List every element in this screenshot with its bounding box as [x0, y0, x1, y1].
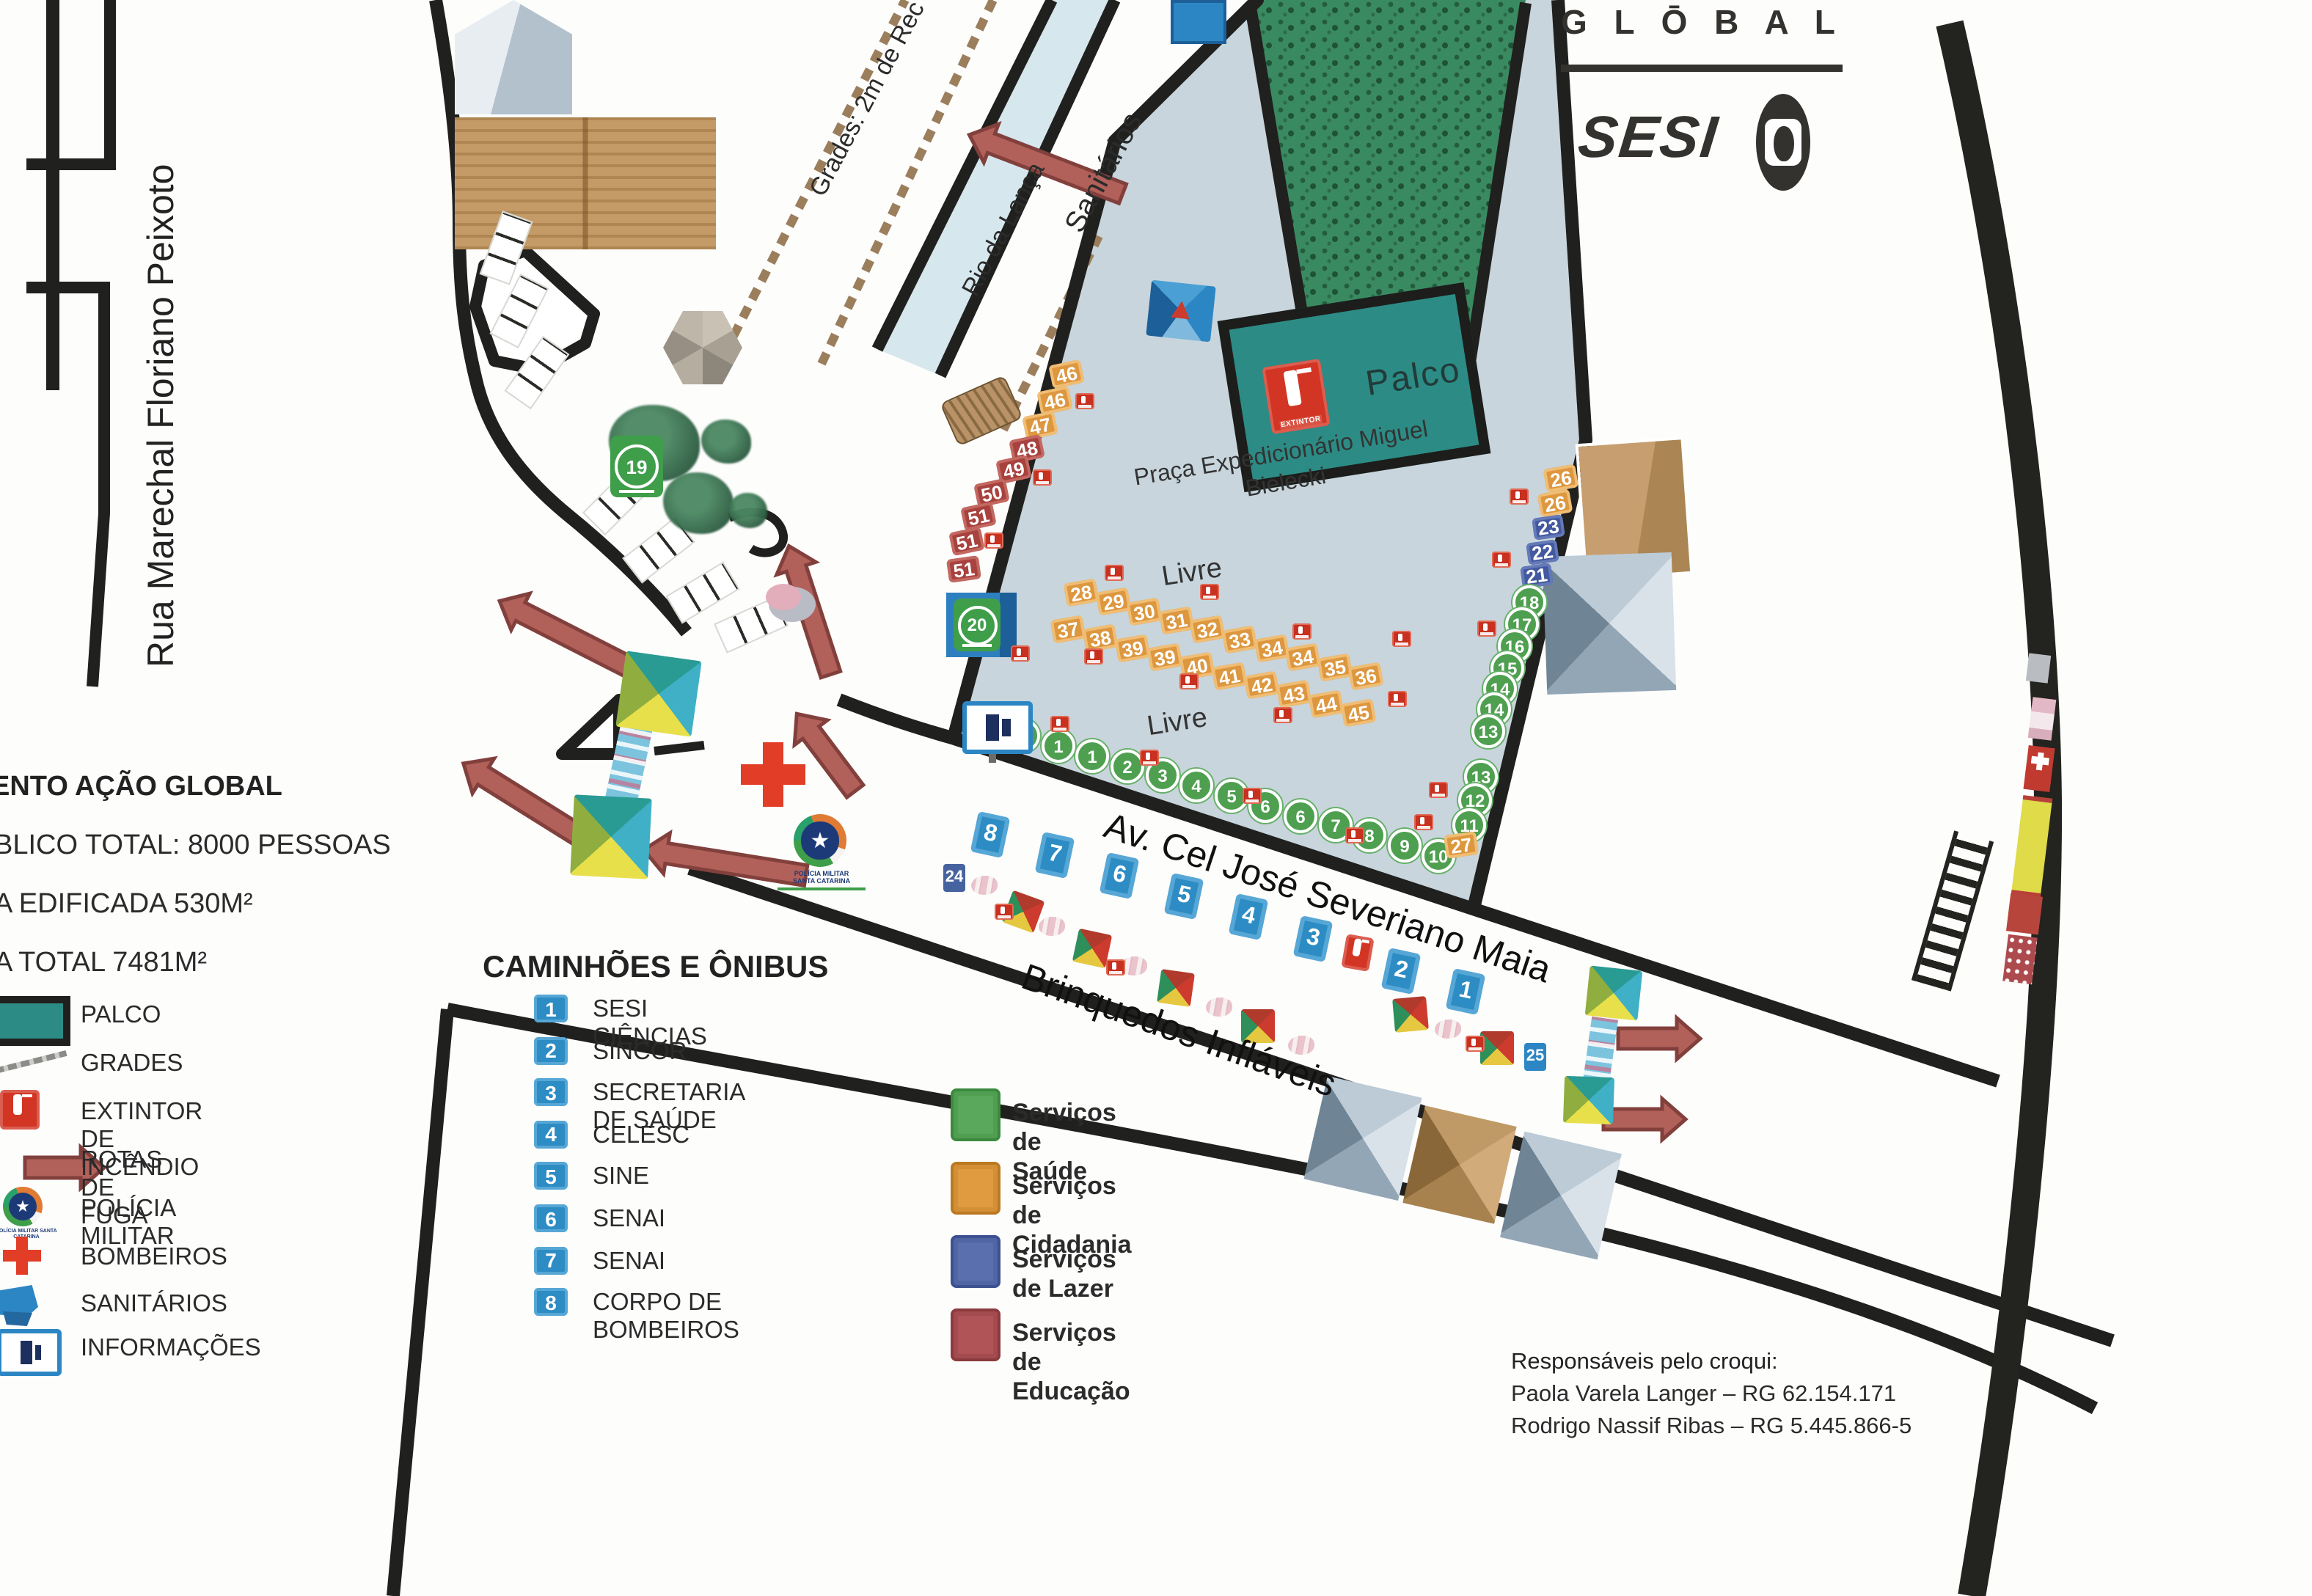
- extintor-icon: [1292, 623, 1312, 640]
- legend-item-label: SANITÁRIOS: [81, 1291, 227, 1319]
- stand-4: 4: [1179, 769, 1213, 802]
- extintor-icon: [1200, 584, 1219, 600]
- truck-row-label: SENAI: [593, 1206, 665, 1234]
- policia-militar-badge-icon: ★: [794, 814, 846, 867]
- stand-1: 1: [1042, 729, 1075, 763]
- badge-number: 20: [957, 605, 997, 645]
- extintor-icon: [1510, 488, 1529, 505]
- stand-22: 22: [1526, 539, 1559, 565]
- service-color-swatch: [951, 1088, 1000, 1141]
- extintor-icon: [1429, 782, 1448, 798]
- street-label-rua-marechal: Rua Marechal Floriano Peixoto: [141, 164, 183, 667]
- stand-6: 6: [1284, 799, 1317, 833]
- stand-25: 25: [1524, 1043, 1546, 1071]
- tent-icon: [1146, 280, 1215, 343]
- extintor-icon: [1414, 814, 1433, 830]
- badge-number: 19: [615, 444, 659, 488]
- escape-route-arrow-icon: [1603, 1099, 1686, 1140]
- wooden-building: [455, 117, 716, 249]
- globo-logo-icon: [1756, 94, 1810, 191]
- scanned-event-map: EXTINTOR Palco 19 20 ★ POLÍCIA MILITAR S…: [0, 0, 2312, 1596]
- track-car-redcross: [2023, 745, 2055, 792]
- extintor-icon: [984, 532, 1003, 549]
- information-sign-icon: [0, 1329, 62, 1376]
- tent-icon: [615, 651, 701, 736]
- truck-row-label: SINE: [593, 1164, 649, 1192]
- track-car-pink: [2028, 697, 2057, 740]
- extintor-label: EXTINTOR: [1278, 414, 1323, 430]
- palco-swatch-icon: [0, 996, 70, 1046]
- tent-icon: [570, 794, 652, 879]
- extintor-icon: [1105, 565, 1124, 581]
- credits-line: Rodrigo Nassif Ribas – RG 5.445.866-5: [1511, 1414, 1912, 1441]
- service-color-swatch: [951, 1162, 1000, 1215]
- stand-20-badge: 20: [954, 598, 1000, 651]
- street-line: [393, 1009, 447, 1596]
- extintor-icon: [1477, 621, 1496, 637]
- tent-icon: [1563, 1076, 1614, 1124]
- extintor-icon: [1106, 959, 1125, 975]
- traffic-island: [562, 700, 619, 754]
- information-sign-icon: [962, 701, 1033, 754]
- tent-icon: [1392, 996, 1429, 1033]
- street-corner: [26, 0, 110, 164]
- badge-star: ★: [802, 822, 838, 859]
- bombeiros-cross-icon: [741, 742, 805, 807]
- global-logo-text: G L Ō B A L: [1561, 3, 1844, 43]
- extintor-icon: [1011, 645, 1030, 662]
- extintor-icon: [1466, 1036, 1485, 1052]
- policia-text-line: POLÍCIA MILITAR: [775, 870, 868, 877]
- truck-row-label: CORPO DE BOMBEIROS: [593, 1289, 739, 1345]
- palco-label: Palco: [1363, 350, 1463, 406]
- bombeiros-cross-icon: [3, 1237, 41, 1275]
- pavilion-gray: [1543, 552, 1676, 695]
- extintor-icon: [1050, 716, 1069, 732]
- track-car-dotted: [2002, 934, 2038, 984]
- extintor-icon: [1345, 827, 1364, 843]
- tent-icon: [1480, 1031, 1514, 1065]
- stand-24: 24: [943, 864, 965, 892]
- truck-number-badge: 4: [534, 1121, 568, 1149]
- extintor-icon: [1140, 750, 1159, 766]
- tree: [701, 420, 751, 464]
- legend-item-label: PALCO: [81, 1002, 161, 1030]
- extintor-icon: [1492, 552, 1511, 568]
- inflatable-toy: [971, 876, 998, 895]
- event-info-line: A TOTAL 7481M²: [0, 948, 207, 980]
- service-label: Serviços de Educação: [1012, 1319, 1130, 1407]
- extintor-icon: [1179, 673, 1199, 689]
- track-car-gray: [2026, 653, 2051, 683]
- sesi-logo-text: SESI: [1575, 106, 1722, 172]
- extintor-icon: [1392, 631, 1411, 647]
- event-title: ENTO AÇÃO GLOBAL: [0, 772, 282, 804]
- escape-route-arrow-icon: [1618, 1018, 1700, 1059]
- road-mark: [654, 745, 704, 751]
- extintor-icon: [1075, 393, 1094, 409]
- truck-number-badge: 6: [534, 1204, 568, 1232]
- truck-row-label: SENAI: [593, 1248, 665, 1275]
- truck-row-label: SINCOR: [593, 1038, 687, 1066]
- logo-underline: [1561, 65, 1843, 72]
- legend-item-label: GRADES: [81, 1050, 183, 1078]
- sanitarios-marker: [1171, 0, 1226, 44]
- policia-militar-badge-icon: ★: [3, 1187, 43, 1226]
- globo-inner-ellipse: [1774, 126, 1793, 161]
- stone-pink: [766, 584, 801, 610]
- inflatable-toy: [1206, 997, 1232, 1017]
- badge-star: ★: [9, 1193, 37, 1220]
- stand-51: 51: [946, 555, 981, 583]
- stand-23: 23: [1532, 514, 1565, 541]
- stand-13: 13: [1471, 714, 1505, 748]
- legend-item-label: POLÍCIA MILITAR: [81, 1196, 175, 1251]
- trucks-title: CAMINHÕES E ÔNIBUS: [483, 951, 828, 986]
- extintor-icon: [1273, 707, 1292, 723]
- legend-item-label: BOMBEIROS: [81, 1244, 227, 1272]
- tent-icon: [1157, 969, 1195, 1007]
- extintor-icon: [1388, 691, 1407, 707]
- map-base-drawing: [0, 0, 2312, 1596]
- policia-badge-text: POLÍCIA MILITAR SANTA CATARINA: [775, 870, 868, 885]
- truck-number-badge: 5: [534, 1163, 568, 1190]
- extintor-icon: [995, 904, 1014, 920]
- credits-line: Paola Varela Langer – RG 62.154.171: [1511, 1382, 1896, 1408]
- tent-icon: [1585, 965, 1643, 1020]
- event-info-line: BLICO TOTAL: 8000 PESSOAS: [0, 830, 391, 863]
- truck-row-label: CELESC: [593, 1122, 689, 1150]
- stand-21: 21: [1520, 563, 1554, 589]
- stand-9: 9: [1388, 829, 1422, 863]
- extintor-icon: [1033, 469, 1052, 486]
- tree: [729, 493, 767, 528]
- track-car-red: [2006, 893, 2043, 935]
- policia-text-line: SANTA CATARINA: [775, 877, 868, 885]
- truck-number-badge: 8: [534, 1288, 568, 1316]
- fire-extinguisher-icon: [1341, 934, 1374, 972]
- map-canvas: EXTINTOR Palco 19 20 ★ POLÍCIA MILITAR S…: [0, 0, 2312, 1596]
- extintor-icon: [1084, 648, 1103, 665]
- event-info-line: A EDIFICADA 530M²: [0, 889, 253, 921]
- truck-number-badge: 2: [534, 1036, 568, 1064]
- extintor-icon: [1243, 788, 1262, 804]
- street-corner: [26, 288, 104, 687]
- stand-19-badge: 19: [610, 436, 663, 497]
- truck-number-badge: 1: [534, 995, 568, 1022]
- truck-number-badge: 7: [534, 1246, 568, 1274]
- service-color-swatch: [951, 1235, 1000, 1288]
- badge-underline: [778, 887, 866, 890]
- stand-1: 1: [1075, 739, 1109, 773]
- inflatable-toy: [1039, 917, 1065, 936]
- legend-item-label: INFORMAÇÕES: [81, 1335, 261, 1363]
- credits-title: Responsáveis pelo croqui:: [1511, 1350, 1778, 1376]
- truck-number-badge: 3: [534, 1078, 568, 1106]
- inflatable-toy: [1435, 1020, 1461, 1039]
- service-label: Serviços de Lazer: [1012, 1245, 1116, 1304]
- fire-extinguisher-icon: EXTINTOR: [1262, 359, 1331, 434]
- fire-extinguisher-icon: [0, 1090, 40, 1130]
- stand-27: 27: [1444, 831, 1479, 859]
- service-color-swatch: [951, 1308, 1000, 1361]
